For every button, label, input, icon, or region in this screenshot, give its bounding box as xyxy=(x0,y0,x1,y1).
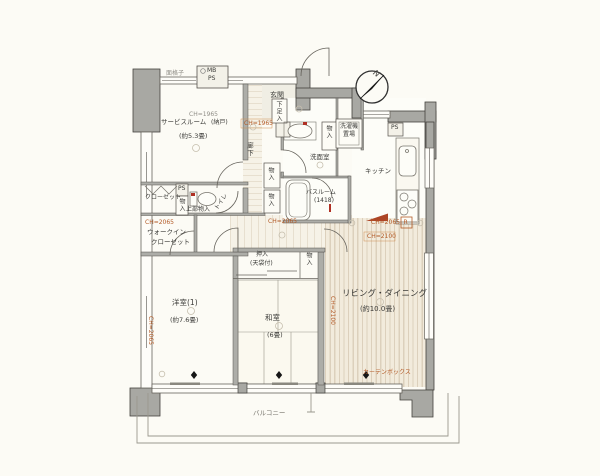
living-ceiling-side-label: CH=2100 xyxy=(329,296,335,325)
toilet-side-storage-label: 物入 xyxy=(178,198,184,212)
storage-hall-1-label: 物入 xyxy=(267,167,273,181)
entrance-label: 玄関 xyxy=(270,92,284,99)
oshiire-label: 押入 xyxy=(256,252,268,258)
japanese-room-label: 和室 xyxy=(265,314,280,322)
washroom-label: 洗面室 xyxy=(310,154,330,161)
pipe-space-top-label: PS xyxy=(208,76,215,82)
western-room-size: (約7.6畳) xyxy=(170,317,198,324)
service-room-note: (納戸) xyxy=(211,120,228,126)
service-room-label: サービスルーム xyxy=(161,119,206,126)
service-room-size: (約5.3畳) xyxy=(179,133,207,140)
oshiire-note: (天袋付) xyxy=(250,261,273,267)
japanese-room-storage-label: 物入 xyxy=(305,252,311,266)
storage-hall-2-label: 物入 xyxy=(267,193,273,207)
kitchen-label: キッチン xyxy=(365,168,391,175)
curtain-box-label: カーテンボックス xyxy=(363,370,411,376)
kitchen-ps-label: PS xyxy=(391,125,398,131)
balcony-label: バルコニー xyxy=(253,410,285,417)
shoe-box-label: 下足入 xyxy=(275,101,281,122)
storage-washroom-label: 物入 xyxy=(325,125,331,139)
laundry-label-line1: 洗濯機 xyxy=(340,124,358,130)
bathroom-label: バスルーム xyxy=(306,190,336,196)
upper-storage-label: 上部物入 xyxy=(186,207,210,213)
living-ceiling-b-label: CH=2100 xyxy=(367,234,396,240)
floor-plan-drawing xyxy=(0,0,600,476)
closet-label: クローゼット xyxy=(145,195,181,201)
living-ceiling-a-label: CH=2065 xyxy=(371,220,400,226)
balcony-outline xyxy=(137,393,459,443)
toilet-ps-label: PS xyxy=(178,186,185,192)
floor-plan: 面格子 MB PS 玄関 下足入 CH=1965 サービスルーム (納戸) (約… xyxy=(0,0,600,476)
bathroom-size: (1418) xyxy=(314,198,334,204)
wic-ceiling-label: CH=2065 xyxy=(145,220,174,226)
western-room-label: 洋室(1) xyxy=(172,299,198,307)
lattice-label: 面格子 xyxy=(166,71,184,77)
meter-box-label: MB xyxy=(207,68,216,74)
living-dining-label: リビング・ダイニング xyxy=(342,290,427,299)
refrigerator-label: R xyxy=(404,220,408,226)
hallway-label: 廊下 xyxy=(246,142,253,157)
living-dining-size: (約10.0畳) xyxy=(360,306,395,313)
corridor-ceiling-label: CH=2065 xyxy=(268,219,297,225)
wic-label-line1: ウォークイン xyxy=(147,229,186,236)
wic-label-line2: クローゼット xyxy=(151,239,190,246)
laundry-label-line2: 置場 xyxy=(343,132,355,138)
western-room-ceiling-label: CH=2065 xyxy=(147,316,153,345)
japanese-room-size: (6畳) xyxy=(267,332,283,339)
entrance-ceiling-label: CH=1965 xyxy=(244,121,273,127)
